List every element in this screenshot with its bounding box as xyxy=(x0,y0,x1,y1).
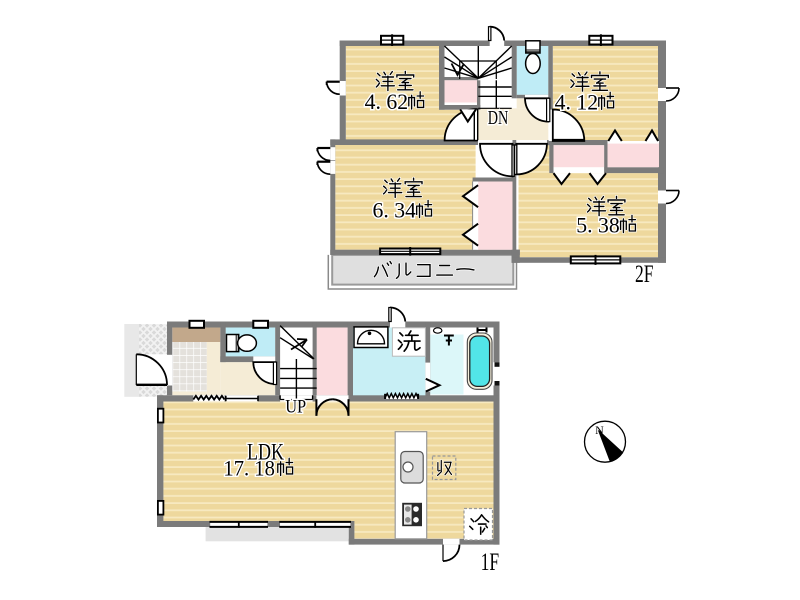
svg-text:17. 18: 17. 18 xyxy=(223,455,275,480)
svg-text:6. 34: 6. 34 xyxy=(373,198,417,223)
svg-text:2F: 2F xyxy=(635,261,654,288)
svg-text:N: N xyxy=(595,423,604,437)
svg-text:UP: UP xyxy=(285,396,306,417)
svg-text:DN: DN xyxy=(488,107,509,129)
svg-text:1F: 1F xyxy=(481,549,500,576)
svg-text:4. 62: 4. 62 xyxy=(365,89,409,114)
svg-text:4. 12: 4. 12 xyxy=(555,89,599,114)
svg-text:5. 38: 5. 38 xyxy=(576,213,620,238)
